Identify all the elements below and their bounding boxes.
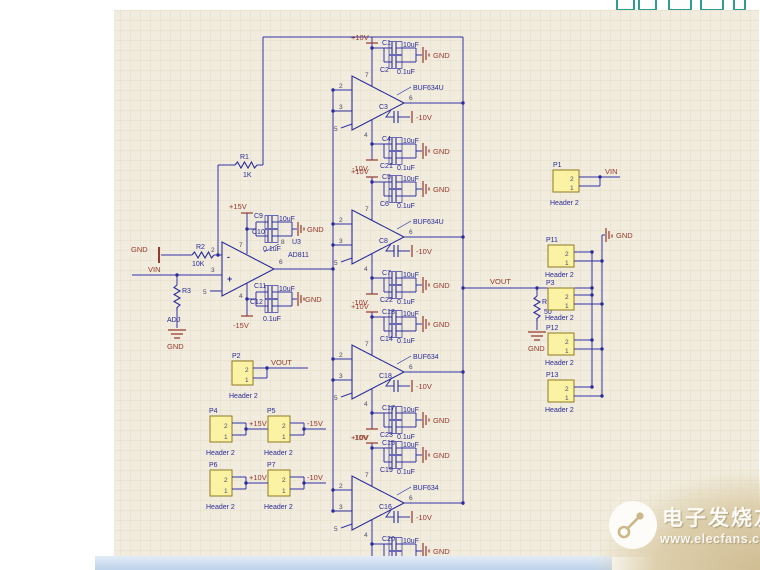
watermark-site: www.elecfans.com bbox=[660, 532, 760, 546]
svg-text:P13: P13 bbox=[546, 372, 559, 379]
svg-text:1: 1 bbox=[245, 377, 249, 384]
svg-text:6: 6 bbox=[409, 229, 413, 236]
gnd-label: GND bbox=[305, 295, 322, 304]
svg-text:C20: C20 bbox=[382, 536, 395, 543]
svg-text:5: 5 bbox=[334, 260, 338, 267]
svg-text:6: 6 bbox=[409, 495, 413, 502]
svg-text:6: 6 bbox=[409, 364, 413, 371]
svg-text:7: 7 bbox=[365, 341, 369, 348]
svg-text:C13: C13 bbox=[382, 309, 395, 316]
svg-text:C11: C11 bbox=[254, 283, 266, 290]
svg-text:0.1uF: 0.1uF bbox=[397, 434, 415, 441]
svg-text:P1: P1 bbox=[553, 162, 562, 169]
svg-text:1: 1 bbox=[565, 303, 569, 310]
svg-text:P2: P2 bbox=[232, 353, 241, 360]
svg-text:C16: C16 bbox=[379, 504, 392, 511]
svg-text:4: 4 bbox=[364, 532, 368, 539]
svg-text:+15V: +15V bbox=[229, 202, 247, 211]
svg-text:5: 5 bbox=[334, 526, 338, 533]
buffer-part: BUF634 bbox=[413, 485, 439, 492]
buffer-part: BUF634U bbox=[413, 219, 444, 226]
svg-text:1K: 1K bbox=[243, 172, 252, 179]
svg-text:2: 2 bbox=[565, 251, 569, 258]
svg-text:-15V: -15V bbox=[307, 419, 323, 428]
svg-text:4: 4 bbox=[239, 293, 243, 300]
svg-text:C2: C2 bbox=[380, 67, 389, 74]
svg-text:C6: C6 bbox=[380, 201, 389, 208]
svg-text:P7: P7 bbox=[267, 462, 276, 469]
svg-text:P3: P3 bbox=[546, 280, 555, 287]
svg-text:0.1uF: 0.1uF bbox=[263, 316, 281, 323]
watermark-brand: 电子发烧友 bbox=[662, 502, 760, 532]
svg-text:10uF: 10uF bbox=[403, 407, 419, 414]
svg-text:2: 2 bbox=[211, 247, 215, 254]
gnd-label: GND bbox=[433, 185, 450, 194]
svg-text:P6: P6 bbox=[209, 462, 218, 469]
svg-text:8: 8 bbox=[281, 239, 285, 246]
vout-net-label: VOUT bbox=[490, 277, 511, 286]
svg-text:1: 1 bbox=[565, 395, 569, 402]
watermark: 电子发烧友 www.elecfans.com bbox=[536, 436, 760, 570]
gnd-label: GND bbox=[131, 245, 148, 254]
buffer-part: BUF634U bbox=[413, 85, 444, 92]
svg-text:C18: C18 bbox=[379, 373, 392, 380]
svg-text:C17: C17 bbox=[382, 405, 395, 412]
svg-text:10uF: 10uF bbox=[403, 176, 419, 183]
svg-text:R2: R2 bbox=[196, 244, 205, 251]
svg-text:C10: C10 bbox=[252, 229, 265, 236]
svg-text:5: 5 bbox=[203, 289, 207, 296]
svg-text:2: 2 bbox=[565, 386, 569, 393]
svg-text:ADJ: ADJ bbox=[167, 317, 180, 324]
svg-text:7: 7 bbox=[239, 242, 243, 249]
svg-text:10uF: 10uF bbox=[403, 42, 419, 49]
svg-text:2: 2 bbox=[565, 339, 569, 346]
svg-text:0.1uF: 0.1uF bbox=[397, 165, 415, 172]
noninverting-input-sign: + bbox=[227, 274, 232, 284]
gnd-label: GND bbox=[528, 344, 545, 353]
svg-text:0.1uF: 0.1uF bbox=[263, 246, 281, 253]
svg-text:6: 6 bbox=[409, 95, 413, 102]
svg-text:+15V: +15V bbox=[249, 419, 267, 428]
svg-text:2: 2 bbox=[224, 477, 228, 484]
svg-text:7: 7 bbox=[365, 206, 369, 213]
gnd-label: GND bbox=[616, 231, 633, 240]
svg-text:1: 1 bbox=[565, 348, 569, 355]
svg-text:C21: C21 bbox=[380, 163, 393, 170]
gnd-label: GND bbox=[307, 225, 324, 234]
svg-text:3: 3 bbox=[339, 238, 343, 245]
svg-text:7: 7 bbox=[365, 72, 369, 79]
svg-text:2: 2 bbox=[339, 352, 343, 359]
page: GND VIN R2 10K R1 1K R3 ADJ G bbox=[0, 0, 760, 570]
p10v-flag: +10V bbox=[351, 167, 369, 176]
svg-text:Header 2: Header 2 bbox=[545, 360, 574, 367]
svg-text:2: 2 bbox=[565, 294, 569, 301]
svg-text:3: 3 bbox=[339, 373, 343, 380]
opamp-part: AD811 bbox=[288, 252, 309, 259]
svg-text:-15V: -15V bbox=[233, 321, 249, 330]
svg-text:Header 2: Header 2 bbox=[264, 450, 293, 457]
svg-text:10uF: 10uF bbox=[279, 286, 295, 293]
svg-text:10uF: 10uF bbox=[403, 138, 419, 145]
vin-net-label: VIN bbox=[605, 167, 618, 176]
m10v-flag: -10V bbox=[416, 513, 432, 522]
svg-text:P11: P11 bbox=[546, 237, 558, 244]
svg-text:Header 2: Header 2 bbox=[545, 272, 574, 279]
svg-text:Header 2: Header 2 bbox=[545, 315, 574, 322]
svg-text:7: 7 bbox=[365, 472, 369, 479]
svg-text:Header 2: Header 2 bbox=[545, 407, 574, 414]
svg-text:C12: C12 bbox=[250, 299, 263, 306]
gnd-label: GND bbox=[433, 281, 450, 290]
gnd-label: GND bbox=[433, 416, 450, 425]
m10v-flag: -10V bbox=[416, 247, 432, 256]
svg-text:1: 1 bbox=[565, 260, 569, 267]
svg-text:Header 2: Header 2 bbox=[550, 200, 579, 207]
svg-text:1: 1 bbox=[570, 185, 574, 192]
svg-text:2: 2 bbox=[282, 423, 286, 430]
svg-text:R3: R3 bbox=[182, 288, 191, 295]
svg-text:10uF: 10uF bbox=[403, 272, 419, 279]
svg-text:-10V: -10V bbox=[352, 298, 368, 307]
gnd-label: GND bbox=[433, 51, 450, 60]
svg-text:5: 5 bbox=[334, 126, 338, 133]
opamp-designator: U3 bbox=[292, 239, 301, 246]
svg-text:P4: P4 bbox=[209, 408, 218, 415]
svg-text:R1: R1 bbox=[240, 154, 249, 161]
svg-text:C1: C1 bbox=[382, 40, 391, 47]
gnd-label: GND bbox=[433, 147, 450, 156]
svg-text:2: 2 bbox=[282, 477, 286, 484]
svg-text:Header 2: Header 2 bbox=[206, 504, 235, 511]
svg-text:0.1uF: 0.1uF bbox=[397, 299, 415, 306]
svg-text:3: 3 bbox=[211, 267, 215, 274]
svg-text:3: 3 bbox=[339, 504, 343, 511]
svg-text:0.1uF: 0.1uF bbox=[397, 203, 415, 210]
svg-text:+10V: +10V bbox=[249, 473, 267, 482]
svg-text:10uF: 10uF bbox=[403, 538, 419, 545]
svg-text:2: 2 bbox=[339, 217, 343, 224]
svg-text:VOUT: VOUT bbox=[271, 358, 292, 367]
gnd-label: GND bbox=[433, 320, 450, 329]
svg-text:-10V: -10V bbox=[307, 473, 323, 482]
gnd-label: GND bbox=[433, 547, 450, 556]
svg-text:5: 5 bbox=[334, 395, 338, 402]
svg-text:10uF: 10uF bbox=[403, 311, 419, 318]
svg-text:1: 1 bbox=[282, 434, 286, 441]
svg-text:2: 2 bbox=[339, 483, 343, 490]
buffer-part: BUF634 bbox=[413, 354, 439, 361]
svg-text:Header 2: Header 2 bbox=[206, 450, 235, 457]
svg-text:1: 1 bbox=[282, 488, 286, 495]
svg-text:C19: C19 bbox=[380, 467, 393, 474]
bottom-strip bbox=[95, 556, 612, 570]
svg-text:C22: C22 bbox=[380, 297, 393, 304]
svg-text:C8: C8 bbox=[379, 238, 388, 245]
gnd-label: GND bbox=[433, 451, 450, 460]
svg-text:2: 2 bbox=[224, 423, 228, 430]
svg-text:C7: C7 bbox=[382, 270, 391, 277]
svg-text:Header 2: Header 2 bbox=[264, 504, 293, 511]
svg-text:C4: C4 bbox=[382, 136, 391, 143]
svg-text:C5: C5 bbox=[382, 174, 391, 181]
svg-text:0.1uF: 0.1uF bbox=[397, 338, 415, 345]
svg-text:1: 1 bbox=[224, 434, 228, 441]
svg-text:6: 6 bbox=[279, 259, 283, 266]
svg-text:P12: P12 bbox=[546, 325, 559, 332]
svg-text:2: 2 bbox=[570, 176, 574, 183]
svg-text:10uF: 10uF bbox=[279, 216, 295, 223]
svg-text:3: 3 bbox=[339, 104, 343, 111]
svg-text:-10V: -10V bbox=[352, 433, 368, 442]
gnd-label: GND bbox=[167, 342, 184, 351]
svg-text:0.1uF: 0.1uF bbox=[397, 469, 415, 476]
svg-text:4: 4 bbox=[364, 266, 368, 273]
p10v-flag: +10V bbox=[351, 33, 369, 42]
svg-text:P5: P5 bbox=[267, 408, 276, 415]
elecfans-logo-icon bbox=[606, 498, 660, 552]
svg-text:C15: C15 bbox=[382, 440, 395, 447]
svg-text:C9: C9 bbox=[254, 213, 263, 220]
svg-text:0.1uF: 0.1uF bbox=[397, 69, 415, 76]
svg-text:2: 2 bbox=[245, 367, 249, 374]
svg-text:4: 4 bbox=[364, 401, 368, 408]
m10v-flag: -10V bbox=[416, 382, 432, 391]
inverting-input-sign: - bbox=[227, 252, 230, 262]
svg-text:10K: 10K bbox=[192, 261, 205, 268]
svg-text:C23: C23 bbox=[380, 432, 393, 439]
svg-text:1: 1 bbox=[224, 488, 228, 495]
svg-text:C3: C3 bbox=[379, 104, 388, 111]
svg-text:4: 4 bbox=[364, 132, 368, 139]
svg-text:10uF: 10uF bbox=[403, 442, 419, 449]
svg-text:2: 2 bbox=[339, 83, 343, 90]
svg-text:C14: C14 bbox=[380, 336, 393, 343]
vin-net-label: VIN bbox=[148, 265, 161, 274]
svg-text:Header 2: Header 2 bbox=[229, 393, 258, 400]
m10v-flag: -10V bbox=[416, 113, 432, 122]
